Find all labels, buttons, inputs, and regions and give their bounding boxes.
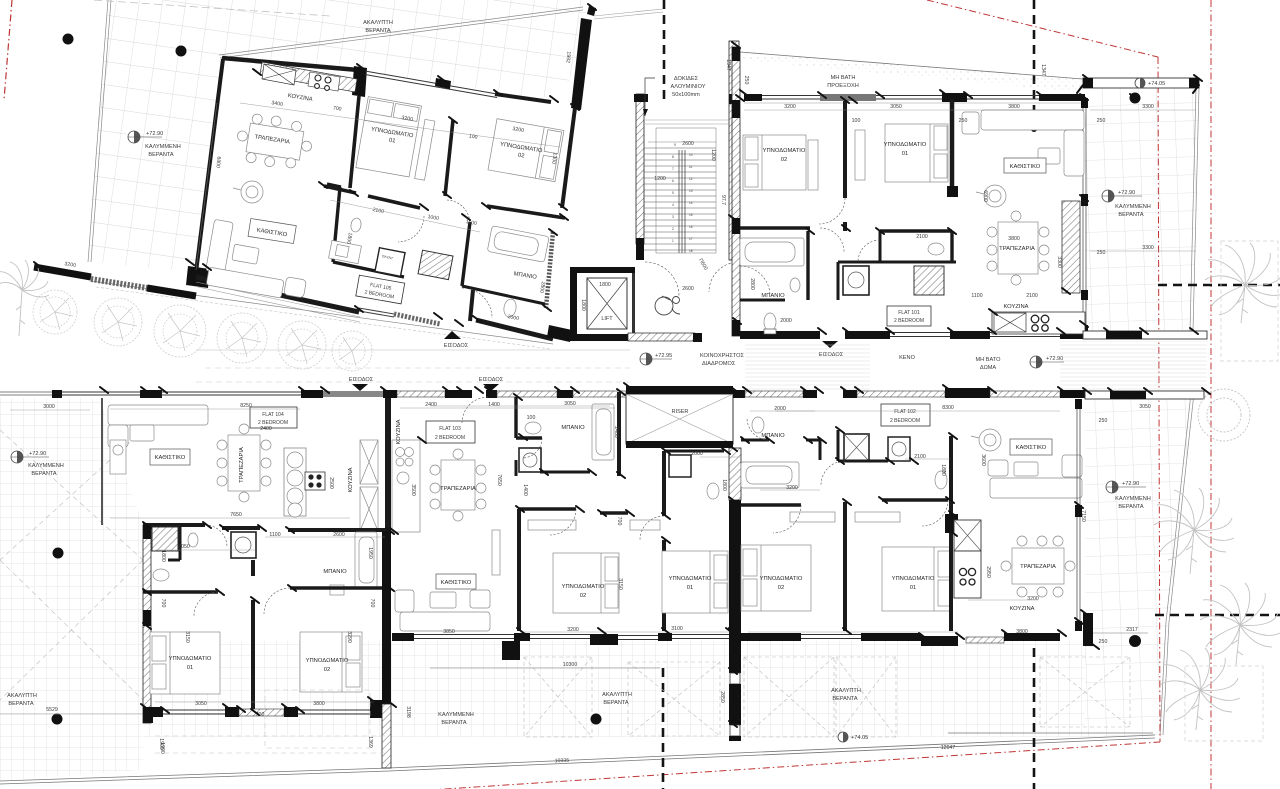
svg-text:10300: 10300 [563,662,578,668]
svg-text:1100: 1100 [971,293,982,299]
svg-text:ΒΕΡΑΝΤΑ: ΒΕΡΑΝΤΑ [1118,504,1144,510]
svg-text:1950: 1950 [367,547,373,559]
svg-text:3290: 3290 [346,631,352,643]
svg-text:1200: 1200 [654,176,666,182]
svg-text:ΒΕΡΑΝΤΑ: ΒΕΡΑΝΤΑ [441,720,467,726]
svg-text:ΤΡΑΠΕΖΑΡΙΑ: ΤΡΑΠΕΖΑΡΙΑ [999,246,1035,252]
svg-text:7650: 7650 [496,474,502,486]
svg-text:ΜΠΑΝΙΟ: ΜΠΑΝΙΟ [323,569,347,575]
svg-text:17: 17 [689,237,693,241]
svg-text:100: 100 [852,118,861,124]
svg-text:1800: 1800 [599,282,611,288]
svg-text:3000: 3000 [43,404,55,410]
svg-text:2950: 2950 [985,566,991,578]
svg-text:5529: 5529 [46,707,58,713]
svg-text:9: 9 [674,143,676,147]
svg-text:ΜΗ ΒΑΤΗ: ΜΗ ΒΑΤΗ [831,75,856,81]
svg-text:7: 7 [672,167,674,171]
svg-text:ΒΕΡΑΝΤΑ: ΒΕΡΑΝΤΑ [8,701,34,707]
svg-text:250: 250 [1097,118,1106,124]
svg-text:1800: 1800 [721,479,727,491]
svg-text:1200: 1200 [710,149,716,161]
svg-text:ΑΚΑΛΥΠΤΗ: ΑΚΑΛΥΠΤΗ [363,20,393,26]
svg-text:ΚΑΛΥΜΜΕΝΗ: ΚΑΛΥΜΜΕΝΗ [438,712,474,718]
svg-text:ΔΟΚΙΔΕΣ: ΔΟΚΙΔΕΣ [674,76,699,82]
svg-text:18: 18 [689,249,693,253]
svg-text:+74.05: +74.05 [1148,81,1165,87]
svg-text:2400: 2400 [613,426,619,438]
svg-text:1800: 1800 [160,550,166,562]
svg-text:ΤΡΑΠΕΖΑΡΙΑ: ΤΡΑΠΕΖΑΡΙΑ [1020,564,1056,570]
svg-text:4: 4 [672,203,674,207]
svg-text:+72.90: +72.90 [29,451,46,457]
svg-text:ΚΑΘΙΣΤΙΚΟ: ΚΑΘΙΣΤΙΚΟ [1016,445,1047,451]
svg-text:ΚΕΝΟ: ΚΕΝΟ [899,355,916,361]
svg-text:3200: 3200 [784,104,796,110]
svg-text:700: 700 [616,517,622,526]
svg-text:2000: 2000 [780,318,792,324]
svg-text:100: 100 [527,415,536,421]
svg-text:1400: 1400 [488,402,500,408]
svg-text:LIFT: LIFT [601,316,613,322]
svg-text:3198: 3198 [405,706,411,718]
svg-text:ΔΩΜΑ: ΔΩΜΑ [980,365,997,371]
svg-text:02: 02 [781,157,787,163]
svg-text:RISER: RISER [672,409,689,415]
svg-text:01: 01 [187,665,193,671]
svg-text:ΠΡΟΕΞΟΧΗ: ΠΡΟΕΞΟΧΗ [827,83,859,89]
svg-text:2100: 2100 [1026,293,1038,299]
svg-text:ΚΟΥΖΙΝΑ: ΚΟΥΖΙΝΑ [1009,606,1034,612]
svg-text:15: 15 [689,213,693,217]
svg-text:3300: 3300 [1056,256,1062,268]
svg-text:ΥΠΝΟΔΩΜΑΤΙΟ: ΥΠΝΟΔΩΜΑΤΙΟ [169,656,212,662]
svg-text:3150: 3150 [617,578,623,590]
svg-text:250: 250 [743,76,749,85]
svg-text:ΚΑΛΥΜΜΕΝΗ: ΚΑΛΥΜΜΕΝΗ [145,144,181,150]
svg-text:FLAT 102: FLAT 102 [894,409,916,415]
svg-text:FLAT 103: FLAT 103 [439,426,461,432]
svg-text:01: 01 [389,138,396,145]
svg-text:ΚΑΘΙΣΤΙΚΟ: ΚΑΘΙΣΤΙΚΟ [441,580,472,586]
svg-text:2317: 2317 [1126,627,1138,633]
svg-text:2100: 2100 [916,234,928,240]
svg-text:ΚΟΙΝΟΧΡΗΣΤΟΣ: ΚΟΙΝΟΧΡΗΣΤΟΣ [700,353,744,359]
svg-text:6800: 6800 [214,156,221,168]
svg-text:ΑΚΑΛΥΠΤΗ: ΑΚΑΛΥΠΤΗ [831,688,861,694]
svg-text:2500: 2500 [328,477,334,489]
svg-text:2: 2 [672,227,674,231]
svg-text:13: 13 [689,189,693,193]
svg-text:2800: 2800 [749,278,755,290]
svg-text:02: 02 [518,153,525,160]
svg-text:1347: 1347 [725,59,731,71]
svg-text:02: 02 [580,593,586,599]
svg-text:ΕΙΣΟΔΟΣ: ΕΙΣΟΔΟΣ [479,377,504,383]
svg-text:700: 700 [160,599,166,608]
svg-text:3300: 3300 [1142,245,1154,251]
svg-text:2 BEDROOM: 2 BEDROOM [435,435,465,441]
svg-text:ΚΟΥΖΙΝΑ: ΚΟΥΖΙΝΑ [396,419,402,444]
svg-text:10335: 10335 [555,758,570,765]
svg-text:ΥΠΝΟΔΩΜΑΤΙΟ: ΥΠΝΟΔΩΜΑΤΙΟ [669,576,712,582]
svg-text:1982: 1982 [564,51,571,63]
svg-text:1400: 1400 [522,484,528,496]
svg-text:2 BEDROOM: 2 BEDROOM [894,318,924,324]
svg-text:6: 6 [672,179,674,183]
svg-text:ΚΑΛΥΜΜΕΝΗ: ΚΑΛΥΜΜΕΝΗ [1115,204,1151,210]
svg-text:+72.90: +72.90 [1118,190,1135,196]
svg-text:97.7: 97.7 [720,195,726,205]
svg-text:ΜΠΑΝΙΟ: ΜΠΑΝΙΟ [761,433,785,439]
svg-text:01: 01 [687,585,693,591]
svg-text:2850: 2850 [719,691,725,703]
svg-text:ΤΡΑΠΕΖΑΡΙΑ: ΤΡΑΠΕΖΑΡΙΑ [440,486,476,492]
svg-text:5: 5 [672,191,674,195]
svg-text:50x100mm: 50x100mm [672,92,700,98]
svg-text:3: 3 [672,215,674,219]
svg-text:3200: 3200 [1027,596,1039,602]
svg-text:ΤΡΑΠΕΖΑΡΙΑ: ΤΡΑΠΕΖΑΡΙΑ [239,447,245,483]
svg-text:3150: 3150 [184,631,190,643]
svg-text:ΑΛΟΥΜΙΝΙΟΥ: ΑΛΟΥΜΙΝΙΟΥ [671,84,706,90]
svg-text:12: 12 [689,177,693,181]
svg-text:ΒΕΡΑΝΤΑ: ΒΕΡΑΝΤΑ [832,696,858,702]
svg-text:ΒΕΡΑΝΤΑ: ΒΕΡΑΝΤΑ [603,700,629,706]
svg-text:ΚΑΛΥΜΜΕΝΗ: ΚΑΛΥΜΜΕΝΗ [1115,496,1151,502]
svg-text:+72.90: +72.90 [1122,481,1139,487]
svg-text:3800: 3800 [1008,236,1020,242]
svg-text:1800: 1800 [580,299,586,311]
svg-text:ΥΠΝΟΔΩΜΑΤΙΟ: ΥΠΝΟΔΩΜΑΤΙΟ [884,142,927,148]
svg-text:3050: 3050 [890,104,902,110]
svg-text:ΒΕΡΑΝΤΑ: ΒΕΡΑΝΤΑ [1118,212,1144,218]
svg-text:02: 02 [324,667,330,673]
svg-text:ΜΗ ΒΑΤΟ: ΜΗ ΒΑΤΟ [976,357,1002,363]
svg-text:1: 1 [672,239,674,243]
svg-text:3100: 3100 [671,626,683,632]
svg-text:2 BEDROOM: 2 BEDROOM [890,418,920,424]
svg-text:8300: 8300 [942,405,954,411]
svg-text:3800: 3800 [1008,104,1020,110]
svg-text:1800: 1800 [940,464,946,476]
svg-text:3300: 3300 [1142,104,1154,110]
svg-text:ΕΙΣΟΔΟΣ: ΕΙΣΟΔΟΣ [349,377,374,383]
svg-text:11: 11 [689,165,693,169]
svg-text:3600: 3600 [980,454,986,466]
svg-text:8: 8 [672,155,674,159]
svg-text:700: 700 [369,599,375,608]
svg-text:250: 250 [1099,418,1108,424]
svg-text:ΥΠΝΟΔΩΜΑΤΙΟ: ΥΠΝΟΔΩΜΑΤΙΟ [763,148,806,154]
svg-text:3050: 3050 [1139,404,1151,410]
svg-text:ΥΠΝΟΔΩΜΑΤΙΟ: ΥΠΝΟΔΩΜΑΤΙΟ [892,576,935,582]
svg-text:2400: 2400 [260,426,272,432]
svg-text:FLAT 104: FLAT 104 [262,412,284,418]
svg-text:ΒΕΡΑΝΤΑ: ΒΕΡΑΝΤΑ [148,152,174,158]
svg-text:7650: 7650 [230,512,242,518]
svg-text:ΑΚΑΛΥΠΤΗ: ΑΚΑΛΥΠΤΗ [602,692,632,698]
svg-text:ΕΙΣΟΔΟΣ: ΕΙΣΟΔΟΣ [444,343,469,349]
svg-text:2050: 2050 [178,544,190,550]
svg-text:ΥΠΝΟΔΩΜΑΤΙΟ: ΥΠΝΟΔΩΜΑΤΙΟ [562,584,605,590]
svg-text:12647: 12647 [941,745,956,751]
svg-text:+72.95: +72.95 [655,353,672,359]
svg-text:2600: 2600 [682,286,694,292]
svg-text:ΚΑΛΥΜΜΕΝΗ: ΚΑΛΥΜΜΕΝΗ [28,463,64,469]
svg-text:ΜΠΑΝΙΟ: ΜΠΑΝΙΟ [761,293,785,299]
svg-text:8250: 8250 [240,403,252,409]
svg-text:ΒΕΡΑΝΤΑ: ΒΕΡΑΝΤΑ [365,28,391,34]
svg-text:ΚΑΘΙΣΤΙΚΟ: ΚΑΘΙΣΤΙΚΟ [1010,164,1041,170]
svg-text:10: 10 [689,153,693,157]
svg-text:+74.05: +74.05 [851,735,868,741]
svg-text:01: 01 [910,585,916,591]
svg-text:ΚΑΘΙΣΤΙΚΟ: ΚΑΘΙΣΤΙΚΟ [155,455,186,461]
svg-text:ΑΚΑΛΥΠΤΗ: ΑΚΑΛΥΠΤΗ [7,693,37,699]
svg-text:2400: 2400 [425,402,437,408]
svg-text:ΚΟΥΖΙΝΑ: ΚΟΥΖΙΝΑ [348,467,354,492]
svg-text:ΜΠΑΝΙΟ: ΜΠΑΝΙΟ [561,425,585,431]
svg-text:+72.90: +72.90 [146,131,163,137]
svg-text:02: 02 [778,585,784,591]
svg-text:FLAT 101: FLAT 101 [898,310,920,316]
svg-text:250: 250 [1099,639,1108,645]
svg-text:01: 01 [902,151,908,157]
svg-text:ΚΟΥΖΙΝΑ: ΚΟΥΖΙΝΑ [1003,304,1028,310]
svg-text:3500: 3500 [410,484,416,496]
svg-text:16: 16 [689,225,693,229]
svg-text:1900: 1900 [158,738,164,750]
svg-text:ΔΙΑΔΡΟΜΟΣ: ΔΙΑΔΡΟΜΟΣ [702,361,736,367]
svg-text:250: 250 [959,118,968,124]
svg-text:1347: 1347 [1040,64,1046,76]
svg-text:ΒΕΡΑΝΤΑ: ΒΕΡΑΝΤΑ [31,471,57,477]
svg-text:ΥΠΝΟΔΩΜΑΤΙΟ: ΥΠΝΟΔΩΜΑΤΙΟ [306,658,349,664]
svg-text:ΥΠΝΟΔΩΜΑΤΙΟ: ΥΠΝΟΔΩΜΑΤΙΟ [760,576,803,582]
svg-text:6900: 6900 [982,190,988,202]
svg-text:2000: 2000 [691,451,703,457]
svg-text:14: 14 [689,201,693,205]
